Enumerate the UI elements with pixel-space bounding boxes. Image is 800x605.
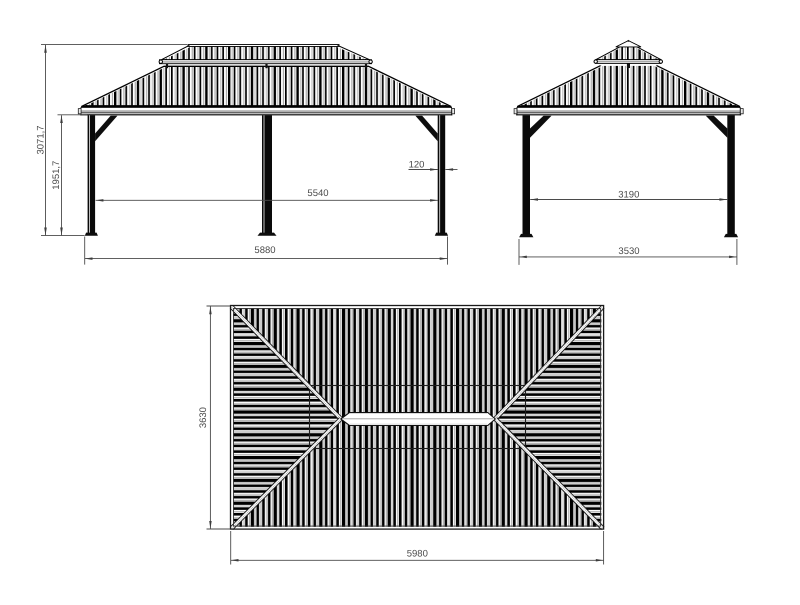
svg-text:1951,7: 1951,7 [51,161,62,190]
svg-text:3630: 3630 [198,407,209,428]
svg-text:120: 120 [409,159,425,170]
svg-text:5880: 5880 [254,245,275,256]
svg-text:3530: 3530 [618,246,639,257]
svg-text:3190: 3190 [618,189,639,200]
svg-text:5980: 5980 [407,549,428,560]
svg-text:3071,7: 3071,7 [35,125,46,154]
svg-text:5540: 5540 [307,188,328,199]
